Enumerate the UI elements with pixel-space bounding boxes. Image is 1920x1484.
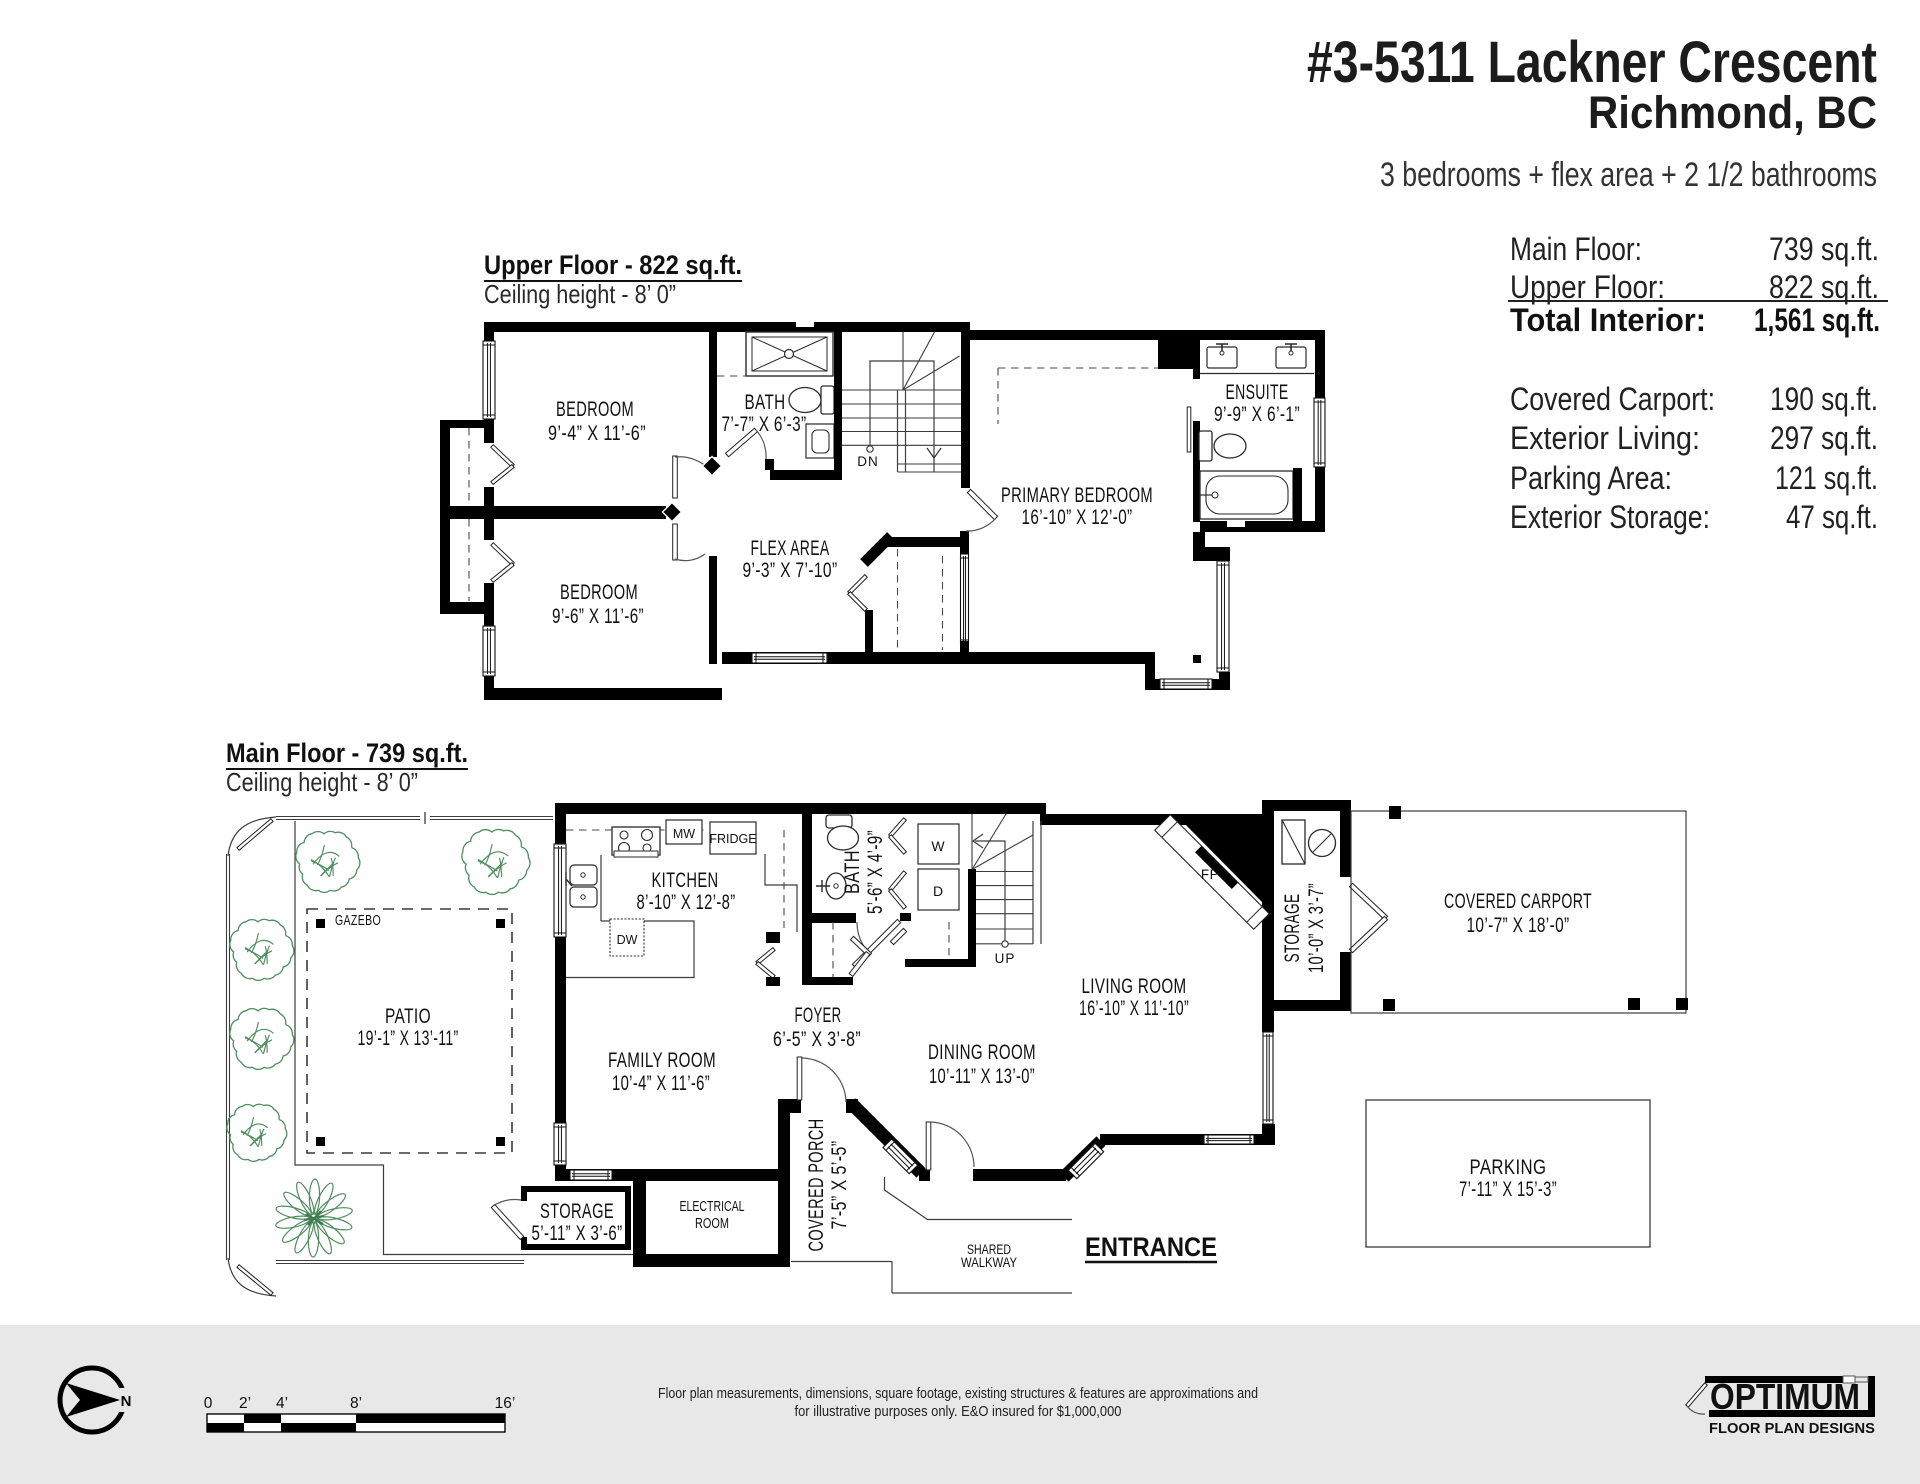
svg-text:UP: UP xyxy=(995,951,1016,966)
svg-text:STORAGE: STORAGE xyxy=(540,1200,614,1223)
svg-text:9’-6” X 11’-6”: 9’-6” X 11’-6” xyxy=(552,605,644,628)
svg-text:6’-5” X 3’-8”: 6’-5” X 3’-8” xyxy=(773,1028,861,1051)
svg-text:16’-10” X 11’-10”: 16’-10” X 11’-10” xyxy=(1079,997,1189,1020)
svg-text:297 sq.ft.: 297 sq.ft. xyxy=(1770,420,1878,456)
svg-text:GAZEBO: GAZEBO xyxy=(335,912,381,929)
svg-text:190 sq.ft.: 190 sq.ft. xyxy=(1770,381,1878,417)
svg-text:ELECTRICAL: ELECTRICAL xyxy=(680,1198,745,1215)
svg-text:Exterior Living:: Exterior Living: xyxy=(1510,420,1700,456)
svg-text:ENSUITE: ENSUITE xyxy=(1226,381,1289,404)
svg-text:W: W xyxy=(931,838,945,854)
svg-text:Ceiling height - 8’ 0”: Ceiling height - 8’ 0” xyxy=(484,279,676,309)
svg-text:Main Floor - 739 sq.ft.: Main Floor - 739 sq.ft. xyxy=(226,738,468,768)
svg-text:FLEX AREA: FLEX AREA xyxy=(751,537,830,560)
svg-text:Total Interior:: Total Interior: xyxy=(1510,302,1706,338)
svg-text:8’-10” X 12’-8”: 8’-10” X 12’-8” xyxy=(637,891,736,914)
svg-text:FAMILY ROOM: FAMILY ROOM xyxy=(608,1049,716,1072)
svg-text:1,561 sq.ft.: 1,561 sq.ft. xyxy=(1754,302,1880,338)
svg-text:9’-9” X 6’-1”: 9’-9” X 6’-1” xyxy=(1214,403,1300,426)
svg-text:Richmond, BC: Richmond, BC xyxy=(1588,87,1877,138)
svg-text:DW: DW xyxy=(617,933,638,947)
svg-text:Covered Carport:: Covered Carport: xyxy=(1510,381,1715,417)
svg-text:N: N xyxy=(121,1393,132,1410)
svg-text:3 bedrooms + flex area + 2 1/2: 3 bedrooms + flex area + 2 1/2 bathrooms xyxy=(1380,156,1877,194)
svg-text:ROOM: ROOM xyxy=(695,1215,729,1232)
svg-text:FRIDGE: FRIDGE xyxy=(709,832,756,846)
svg-text:PATIO: PATIO xyxy=(385,1005,431,1028)
svg-text:5’-6” X 4’-9”: 5’-6” X 4’-9” xyxy=(864,830,887,914)
svg-text:DINING ROOM: DINING ROOM xyxy=(928,1041,1036,1064)
svg-text:KITCHEN: KITCHEN xyxy=(652,869,719,892)
svg-text:47 sq.ft.: 47 sq.ft. xyxy=(1786,499,1878,535)
svg-text:COVERED PORCH: COVERED PORCH xyxy=(805,1119,828,1252)
svg-text:10’-4” X 11’-6”: 10’-4” X 11’-6” xyxy=(612,1072,710,1095)
svg-text:PRIMARY BEDROOM: PRIMARY BEDROOM xyxy=(1001,484,1153,507)
svg-text:Upper Floor - 822 sq.ft.: Upper Floor - 822 sq.ft. xyxy=(484,250,742,280)
svg-text:BEDROOM: BEDROOM xyxy=(560,581,638,604)
svg-text:16’-10” X 12’-0”: 16’-10” X 12’-0” xyxy=(1022,506,1133,529)
svg-text:0: 0 xyxy=(204,1395,213,1412)
svg-text:7’-11” X 15’-3”: 7’-11” X 15’-3” xyxy=(1459,1178,1557,1201)
svg-text:BATH: BATH xyxy=(841,850,864,894)
svg-text:10’-0” X 3’-7”: 10’-0” X 3’-7” xyxy=(1305,883,1328,973)
svg-text:ENTRANCE: ENTRANCE xyxy=(1085,1232,1217,1262)
svg-text:121 sq.ft.: 121 sq.ft. xyxy=(1775,460,1878,496)
svg-text:7’-7” X 6’-3”: 7’-7” X 6’-3” xyxy=(722,413,807,436)
svg-text:Main Floor:: Main Floor: xyxy=(1510,231,1642,267)
svg-text:Exterior Storage:: Exterior Storage: xyxy=(1510,499,1710,535)
svg-text:FLOOR PLAN DESIGNS: FLOOR PLAN DESIGNS xyxy=(1709,1421,1875,1437)
svg-text:739 sq.ft.: 739 sq.ft. xyxy=(1769,231,1879,267)
svg-text:8’: 8’ xyxy=(350,1395,362,1412)
svg-text:LIVING ROOM: LIVING ROOM xyxy=(1082,975,1187,998)
svg-text:10’-7” X 18’-0”: 10’-7” X 18’-0” xyxy=(1467,914,1570,937)
svg-text:822 sq.ft.: 822 sq.ft. xyxy=(1769,269,1879,305)
svg-text:COVERED CARPORT: COVERED CARPORT xyxy=(1444,890,1592,913)
svg-text:BEDROOM: BEDROOM xyxy=(556,398,634,421)
svg-text:5’-11” X 3’-6”: 5’-11” X 3’-6” xyxy=(532,1222,623,1245)
svg-text:OPTIMUM: OPTIMUM xyxy=(1710,1376,1860,1417)
svg-text:FOYER: FOYER xyxy=(795,1004,842,1027)
svg-text:9’-4” X 11’-6”: 9’-4” X 11’-6” xyxy=(548,422,646,445)
svg-text:7’-5” X 5’-5”: 7’-5” X 5’-5” xyxy=(828,1141,851,1230)
svg-text:2’: 2’ xyxy=(239,1395,251,1412)
svg-text:16’: 16’ xyxy=(495,1395,516,1412)
svg-text:Floor plan measurements, dimen: Floor plan measurements, dimensions, squ… xyxy=(658,1385,1258,1402)
svg-text:MW: MW xyxy=(673,827,695,841)
svg-text:BATH: BATH xyxy=(745,391,786,414)
svg-text:DN: DN xyxy=(857,454,879,469)
svg-text:19’-1” X 13’-11”: 19’-1” X 13’-11” xyxy=(358,1027,459,1050)
svg-text:WALKWAY: WALKWAY xyxy=(961,1254,1018,1270)
svg-text:STORAGE: STORAGE xyxy=(1281,894,1304,963)
svg-text:for illustrative purposes only: for illustrative purposes only. E&O insu… xyxy=(795,1403,1122,1420)
svg-text:10’-11” X 13’-0”: 10’-11” X 13’-0” xyxy=(929,1065,1035,1088)
svg-text:4’: 4’ xyxy=(276,1395,288,1412)
svg-text:9’-3” X 7’-10”: 9’-3” X 7’-10” xyxy=(743,559,838,582)
svg-text:Upper Floor:: Upper Floor: xyxy=(1510,269,1665,305)
svg-text:Parking Area:: Parking Area: xyxy=(1510,460,1672,496)
svg-text:Ceiling height - 8’ 0”: Ceiling height - 8’ 0” xyxy=(226,767,418,797)
svg-text:PARKING: PARKING xyxy=(1470,1156,1547,1179)
svg-text:#3-5311 Lackner Crescent: #3-5311 Lackner Crescent xyxy=(1307,30,1877,95)
svg-text:FP: FP xyxy=(1201,867,1219,882)
svg-text:D: D xyxy=(933,883,943,899)
